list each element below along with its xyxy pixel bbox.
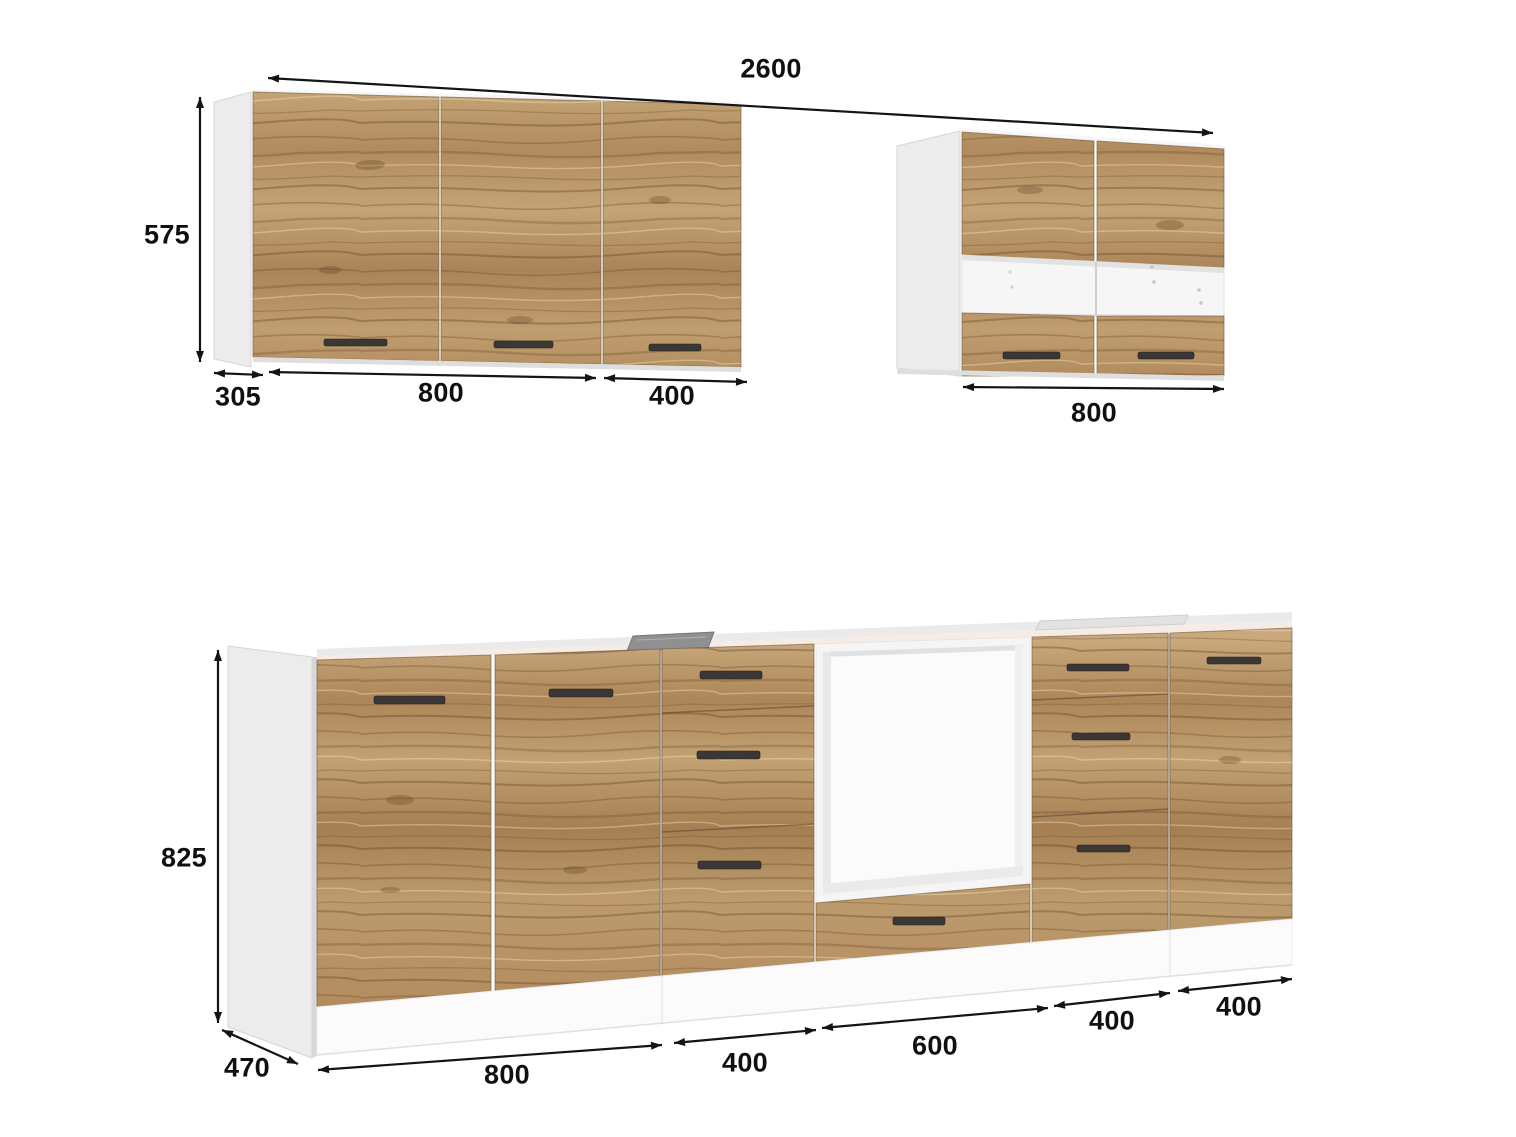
cabinet-drawing	[0, 0, 1516, 1137]
dim-label-base-depth: 470	[224, 1055, 270, 1082]
wall-cabinet-left	[214, 89, 741, 372]
arrow-base-400-left	[674, 1030, 816, 1043]
base-door-2	[495, 649, 660, 991]
oven-cavity	[823, 645, 1023, 894]
dim-label-base-600: 600	[912, 1033, 958, 1060]
base-drawers-right	[1032, 633, 1168, 943]
wall-left-door-3	[603, 101, 741, 367]
dim-label-wall-total: 2600	[740, 56, 801, 83]
wall-right-upper-door-2	[1097, 141, 1224, 268]
dim-label-base-height: 825	[161, 845, 207, 872]
wall-right-lower-door-2	[1097, 316, 1224, 375]
wall-left-door-1	[253, 92, 439, 361]
door-handle	[549, 689, 613, 697]
drawer-handle	[1067, 664, 1129, 671]
dim-label-base-400-mid: 400	[1089, 1008, 1135, 1035]
arrow-base-600	[822, 1008, 1048, 1028]
dim-label-wall-depth: 305	[215, 384, 261, 411]
dim-label-wall-right-800: 800	[1071, 400, 1117, 427]
base-single-door	[1170, 628, 1292, 930]
arrow-wall-right-800	[963, 387, 1224, 389]
arrow-base-400-mid	[1054, 993, 1170, 1006]
wall-right-upper-door-1	[962, 132, 1094, 262]
base-cabinet-run	[228, 612, 1292, 1058]
base-drawers-left	[662, 644, 814, 976]
drawer-handle	[1072, 733, 1130, 740]
door-handle	[324, 339, 387, 346]
base-side-edge	[312, 657, 317, 1058]
wall-cabinet-right	[897, 128, 1224, 381]
dim-label-wall-400: 400	[649, 383, 695, 410]
door-handle	[374, 696, 445, 704]
drawer-handle	[1077, 845, 1130, 852]
dim-label-wall-height: 575	[144, 222, 190, 249]
drawer-handle	[697, 751, 760, 759]
door-handle	[649, 344, 701, 351]
drawer-handle	[893, 917, 945, 925]
door-handle	[1138, 352, 1194, 359]
arrow-wall-depth	[214, 373, 263, 375]
drawer-handle	[698, 861, 761, 869]
door-handle	[494, 341, 553, 348]
wall-right-lower-door-1	[962, 313, 1094, 376]
wall-right-side-panel	[897, 131, 960, 376]
kitchen-dimension-diagram: 2600 575 305 800 400 800 825 470 800 400…	[0, 0, 1516, 1137]
door-handle	[1003, 352, 1060, 359]
arrow-base-400-right	[1178, 979, 1292, 991]
dim-label-base-400-left: 400	[722, 1050, 768, 1077]
drawer-handle	[700, 671, 762, 679]
dim-label-wall-800: 800	[418, 380, 464, 407]
base-door-1	[317, 655, 491, 1007]
wall-left-side-panel	[214, 92, 251, 367]
base-side-panel	[228, 646, 312, 1058]
dim-label-base-400-right: 400	[1216, 994, 1262, 1021]
door-handle	[1207, 657, 1261, 664]
dim-label-base-800: 800	[484, 1062, 530, 1089]
